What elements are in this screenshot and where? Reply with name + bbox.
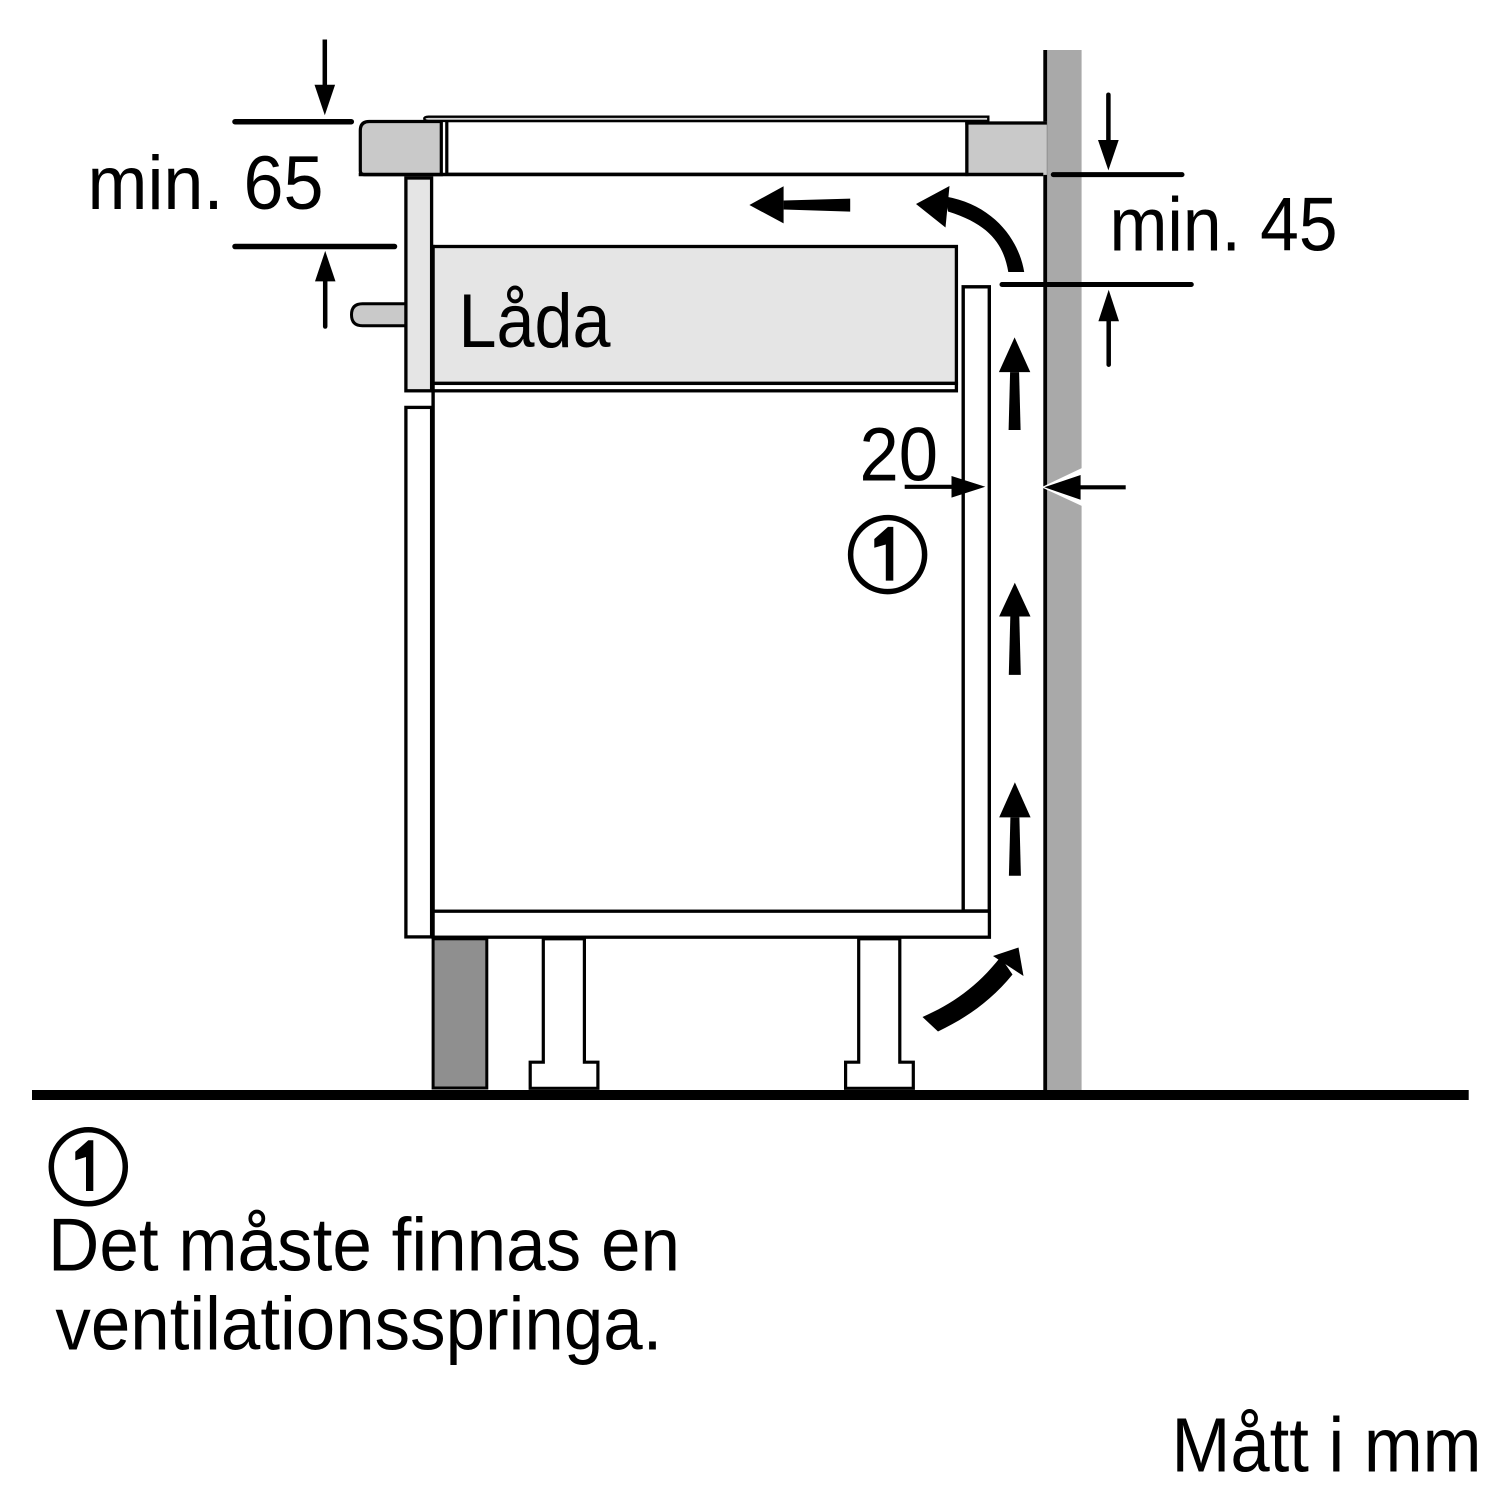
- svg-text:Mått i mm: Mått i mm: [1172, 1402, 1482, 1488]
- svg-text:ventilationsspringa.: ventilationsspringa.: [55, 1282, 662, 1366]
- svg-text:min. 45: min. 45: [1110, 183, 1338, 268]
- svg-text:Det måste finnas en: Det måste finnas en: [48, 1202, 680, 1286]
- svg-text:Låda: Låda: [459, 279, 612, 364]
- svg-text:min. 65: min. 65: [88, 141, 324, 226]
